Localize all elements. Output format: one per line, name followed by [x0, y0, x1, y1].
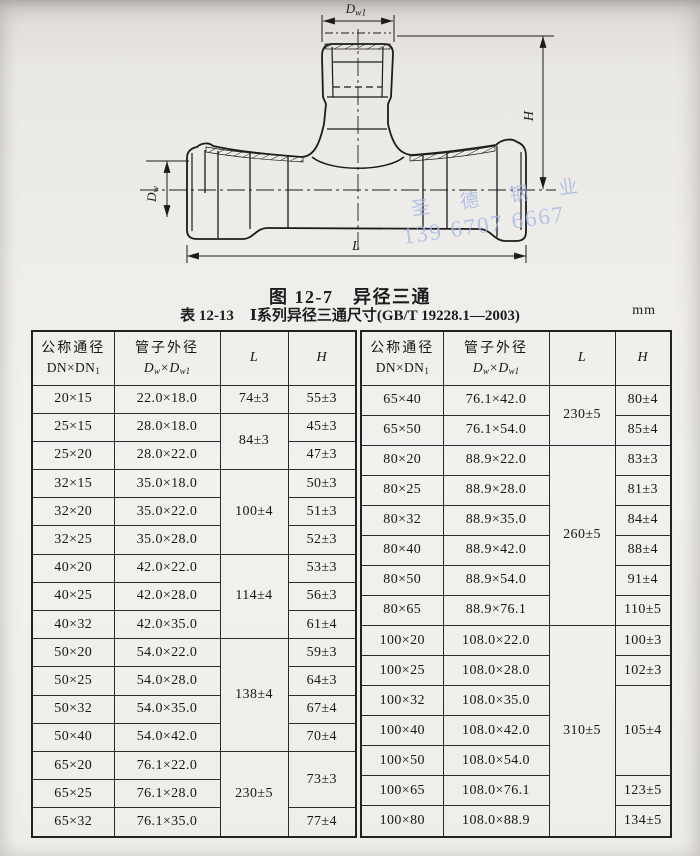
cell-dn: 65×20 [32, 751, 114, 779]
table-row: 100×32108.0×35.0105±4 [361, 686, 671, 716]
table-header-row: 公称通径DN×DN1 管子外径Dw×Dw1 L H [32, 331, 356, 385]
cell-dw: 108.0×35.0 [443, 686, 549, 716]
cell-h: 110±5 [615, 595, 671, 625]
cell-h: 61±4 [288, 611, 356, 639]
cell-h: 77±4 [288, 808, 356, 837]
col-header-dn: 公称通径DN×DN1 [32, 331, 114, 385]
col-header-dn: 公称通径DN×DN1 [361, 331, 443, 385]
cell-dw: 35.0×18.0 [114, 470, 220, 498]
cell-dw: 35.0×28.0 [114, 526, 220, 554]
table-row: 25×1528.0×18.084±345±3 [32, 413, 356, 441]
cell-l: 114±4 [220, 554, 288, 639]
cell-dw: 54.0×22.0 [114, 639, 220, 667]
cell-h: 105±4 [615, 686, 671, 776]
table-row: 65×4076.1×42.0230±580±4 [361, 385, 671, 415]
cell-dw: 108.0×54.0 [443, 746, 549, 776]
cell-dw: 108.0×76.1 [443, 776, 549, 806]
cell-dn: 80×65 [361, 595, 443, 625]
table-row: 32×1535.0×18.0100±450±3 [32, 470, 356, 498]
cell-dw: 54.0×42.0 [114, 723, 220, 751]
cell-l: 74±3 [220, 385, 288, 413]
table-row: 50×2054.0×22.0138±459±3 [32, 639, 356, 667]
table-row: 50×2554.0×28.064±3 [32, 667, 356, 695]
table-row: 40×2542.0×28.056±3 [32, 582, 356, 610]
dw-label: Dw [144, 185, 162, 202]
table-row: 80×3288.9×35.084±4 [361, 505, 671, 535]
cell-dn: 25×20 [32, 441, 114, 469]
cell-dn: 32×20 [32, 498, 114, 526]
cell-h: 59±3 [288, 639, 356, 667]
dimension-table-right: 公称通径DN×DN1 管子外径Dw×Dw1 L H 65×4076.1×42.0… [360, 330, 672, 838]
cell-l: 230±5 [220, 751, 288, 837]
table-row: 50×3254.0×35.067±4 [32, 695, 356, 723]
cell-dn: 100×65 [361, 776, 443, 806]
cell-dn: 80×25 [361, 475, 443, 505]
dimension-table-left: 公称通径DN×DN1 管子外径Dw×Dw1 L H 20×1522.0×18.0… [31, 330, 357, 838]
h-label: H [522, 110, 537, 122]
col-header-dw: 管子外径Dw×Dw1 [443, 331, 549, 385]
cell-h: 123±5 [615, 776, 671, 806]
cell-dn: 65×32 [32, 808, 114, 837]
cell-h: 81±3 [615, 475, 671, 505]
cell-dn: 40×32 [32, 611, 114, 639]
cell-h: 80±4 [615, 385, 671, 415]
cell-h: 134±5 [615, 806, 671, 837]
cell-dw: 76.1×35.0 [114, 808, 220, 837]
cell-h: 84±4 [615, 505, 671, 535]
cell-dw: 76.1×42.0 [443, 385, 549, 415]
table-row: 40×3242.0×35.061±4 [32, 611, 356, 639]
cell-dn: 50×32 [32, 695, 114, 723]
cell-dn: 80×20 [361, 445, 443, 475]
cell-dw: 22.0×18.0 [114, 385, 220, 413]
cell-dn: 100×20 [361, 626, 443, 656]
cell-dw: 88.9×42.0 [443, 535, 549, 565]
cell-dn: 40×20 [32, 554, 114, 582]
cell-dn: 100×25 [361, 656, 443, 686]
cell-h: 100±3 [615, 626, 671, 656]
cell-dw: 108.0×22.0 [443, 626, 549, 656]
cell-dn: 100×40 [361, 716, 443, 746]
cell-h: 51±3 [288, 498, 356, 526]
cell-dw: 76.1×28.0 [114, 780, 220, 808]
table-caption-label: 表 12-13 [180, 308, 234, 324]
l-label: L [351, 239, 360, 254]
table-header-row: 公称通径DN×DN1 管子外径Dw×Dw1 L H [361, 331, 671, 385]
table-caption-title: Ⅰ系列异径三通尺寸(GB/T 19228.1—2003) [250, 308, 520, 324]
unit-label: mm [632, 303, 656, 319]
col-header-dw: 管子外径Dw×Dw1 [114, 331, 220, 385]
col-header-h: H [615, 331, 671, 385]
cell-dw: 35.0×22.0 [114, 498, 220, 526]
cell-dn: 65×25 [32, 780, 114, 808]
cell-dn: 25×15 [32, 413, 114, 441]
cell-dw: 108.0×28.0 [443, 656, 549, 686]
cell-dw: 76.1×22.0 [114, 751, 220, 779]
table-row: 65×3276.1×35.077±4 [32, 808, 356, 837]
cell-dw: 88.9×28.0 [443, 475, 549, 505]
cell-dn: 50×40 [32, 723, 114, 751]
table-caption: 表 12-13Ⅰ系列异径三通尺寸(GB/T 19228.1—2003) [0, 304, 700, 325]
cell-dn: 32×15 [32, 470, 114, 498]
cell-dn: 80×32 [361, 505, 443, 535]
cell-dw: 88.9×76.1 [443, 595, 549, 625]
table-row: 100×65108.0×76.1123±5 [361, 776, 671, 806]
table-row: 25×2028.0×22.047±3 [32, 441, 356, 469]
scanned-handbook-page: Dw1 H Dw L 圣 德 钢 业 139 6707 6667 图 12-7 … [0, 0, 700, 856]
cell-dw: 88.9×54.0 [443, 565, 549, 595]
cell-dn: 20×15 [32, 385, 114, 413]
tee-drawing: Dw1 H Dw L 圣 德 钢 业 139 6707 6667 [0, 0, 700, 282]
cell-dn: 65×40 [361, 385, 443, 415]
col-header-l: L [220, 331, 288, 385]
cell-l: 84±3 [220, 413, 288, 469]
cell-dw: 88.9×35.0 [443, 505, 549, 535]
cell-dn: 80×50 [361, 565, 443, 595]
cell-dn: 50×20 [32, 639, 114, 667]
cell-h: 91±4 [615, 565, 671, 595]
cell-h: 56±3 [288, 582, 356, 610]
table-row: 65×5076.1×54.085±4 [361, 415, 671, 445]
cell-dw: 42.0×22.0 [114, 554, 220, 582]
cell-h: 53±3 [288, 554, 356, 582]
table-row: 80×2588.9×28.081±3 [361, 475, 671, 505]
cell-dn: 80×40 [361, 535, 443, 565]
cell-dw: 54.0×35.0 [114, 695, 220, 723]
cell-h: 85±4 [615, 415, 671, 445]
cell-dw: 42.0×28.0 [114, 582, 220, 610]
table-row: 100×25108.0×28.0102±3 [361, 656, 671, 686]
dimension-tables: 公称通径DN×DN1 管子外径Dw×Dw1 L H 20×1522.0×18.0… [31, 330, 672, 838]
cell-dn: 40×25 [32, 582, 114, 610]
table-row: 80×6588.9×76.1110±5 [361, 595, 671, 625]
table-row: 50×4054.0×42.070±4 [32, 723, 356, 751]
cell-h: 52±3 [288, 526, 356, 554]
cell-dn: 65×50 [361, 415, 443, 445]
cell-h: 83±3 [615, 445, 671, 475]
cell-dn: 50×25 [32, 667, 114, 695]
table-row: 80×5088.9×54.091±4 [361, 565, 671, 595]
table-row: 32×2535.0×28.052±3 [32, 526, 356, 554]
cell-h: 55±3 [288, 385, 356, 413]
table-row: 100×20108.0×22.0310±5100±3 [361, 626, 671, 656]
col-header-l: L [549, 331, 615, 385]
cell-dw: 54.0×28.0 [114, 667, 220, 695]
cell-h: 64±3 [288, 667, 356, 695]
cell-l: 230±5 [549, 385, 615, 445]
cell-dw: 28.0×18.0 [114, 413, 220, 441]
cell-dw: 28.0×22.0 [114, 441, 220, 469]
cell-dw: 108.0×88.9 [443, 806, 549, 837]
cell-l: 138±4 [220, 639, 288, 752]
table-row: 20×1522.0×18.074±355±3 [32, 385, 356, 413]
cell-h: 70±4 [288, 723, 356, 751]
cell-dw: 42.0×35.0 [114, 611, 220, 639]
table-row: 65×2076.1×22.0230±573±3 [32, 751, 356, 779]
cell-dw: 88.9×22.0 [443, 445, 549, 475]
table-row: 40×2042.0×22.0114±453±3 [32, 554, 356, 582]
cell-h: 50±3 [288, 470, 356, 498]
cell-dn: 100×50 [361, 746, 443, 776]
table-row: 100×80108.0×88.9134±5 [361, 806, 671, 837]
cell-l: 310±5 [549, 626, 615, 838]
table-row: 80×2088.9×22.0260±583±3 [361, 445, 671, 475]
table-row: 32×2035.0×22.051±3 [32, 498, 356, 526]
cell-h: 47±3 [288, 441, 356, 469]
cell-dn: 32×25 [32, 526, 114, 554]
dw1-label: Dw1 [345, 1, 366, 19]
cell-h: 73±3 [288, 751, 356, 807]
cell-h: 102±3 [615, 656, 671, 686]
cell-h: 45±3 [288, 413, 356, 441]
cell-l: 100±4 [220, 470, 288, 555]
cell-l: 260±5 [549, 445, 615, 625]
cell-dn: 100×32 [361, 686, 443, 716]
cell-dw: 108.0×42.0 [443, 716, 549, 746]
cell-dw: 76.1×54.0 [443, 415, 549, 445]
table-row: 80×4088.9×42.088±4 [361, 535, 671, 565]
cell-h: 67±4 [288, 695, 356, 723]
cell-h: 88±4 [615, 535, 671, 565]
cell-dn: 100×80 [361, 806, 443, 837]
col-header-h: H [288, 331, 356, 385]
